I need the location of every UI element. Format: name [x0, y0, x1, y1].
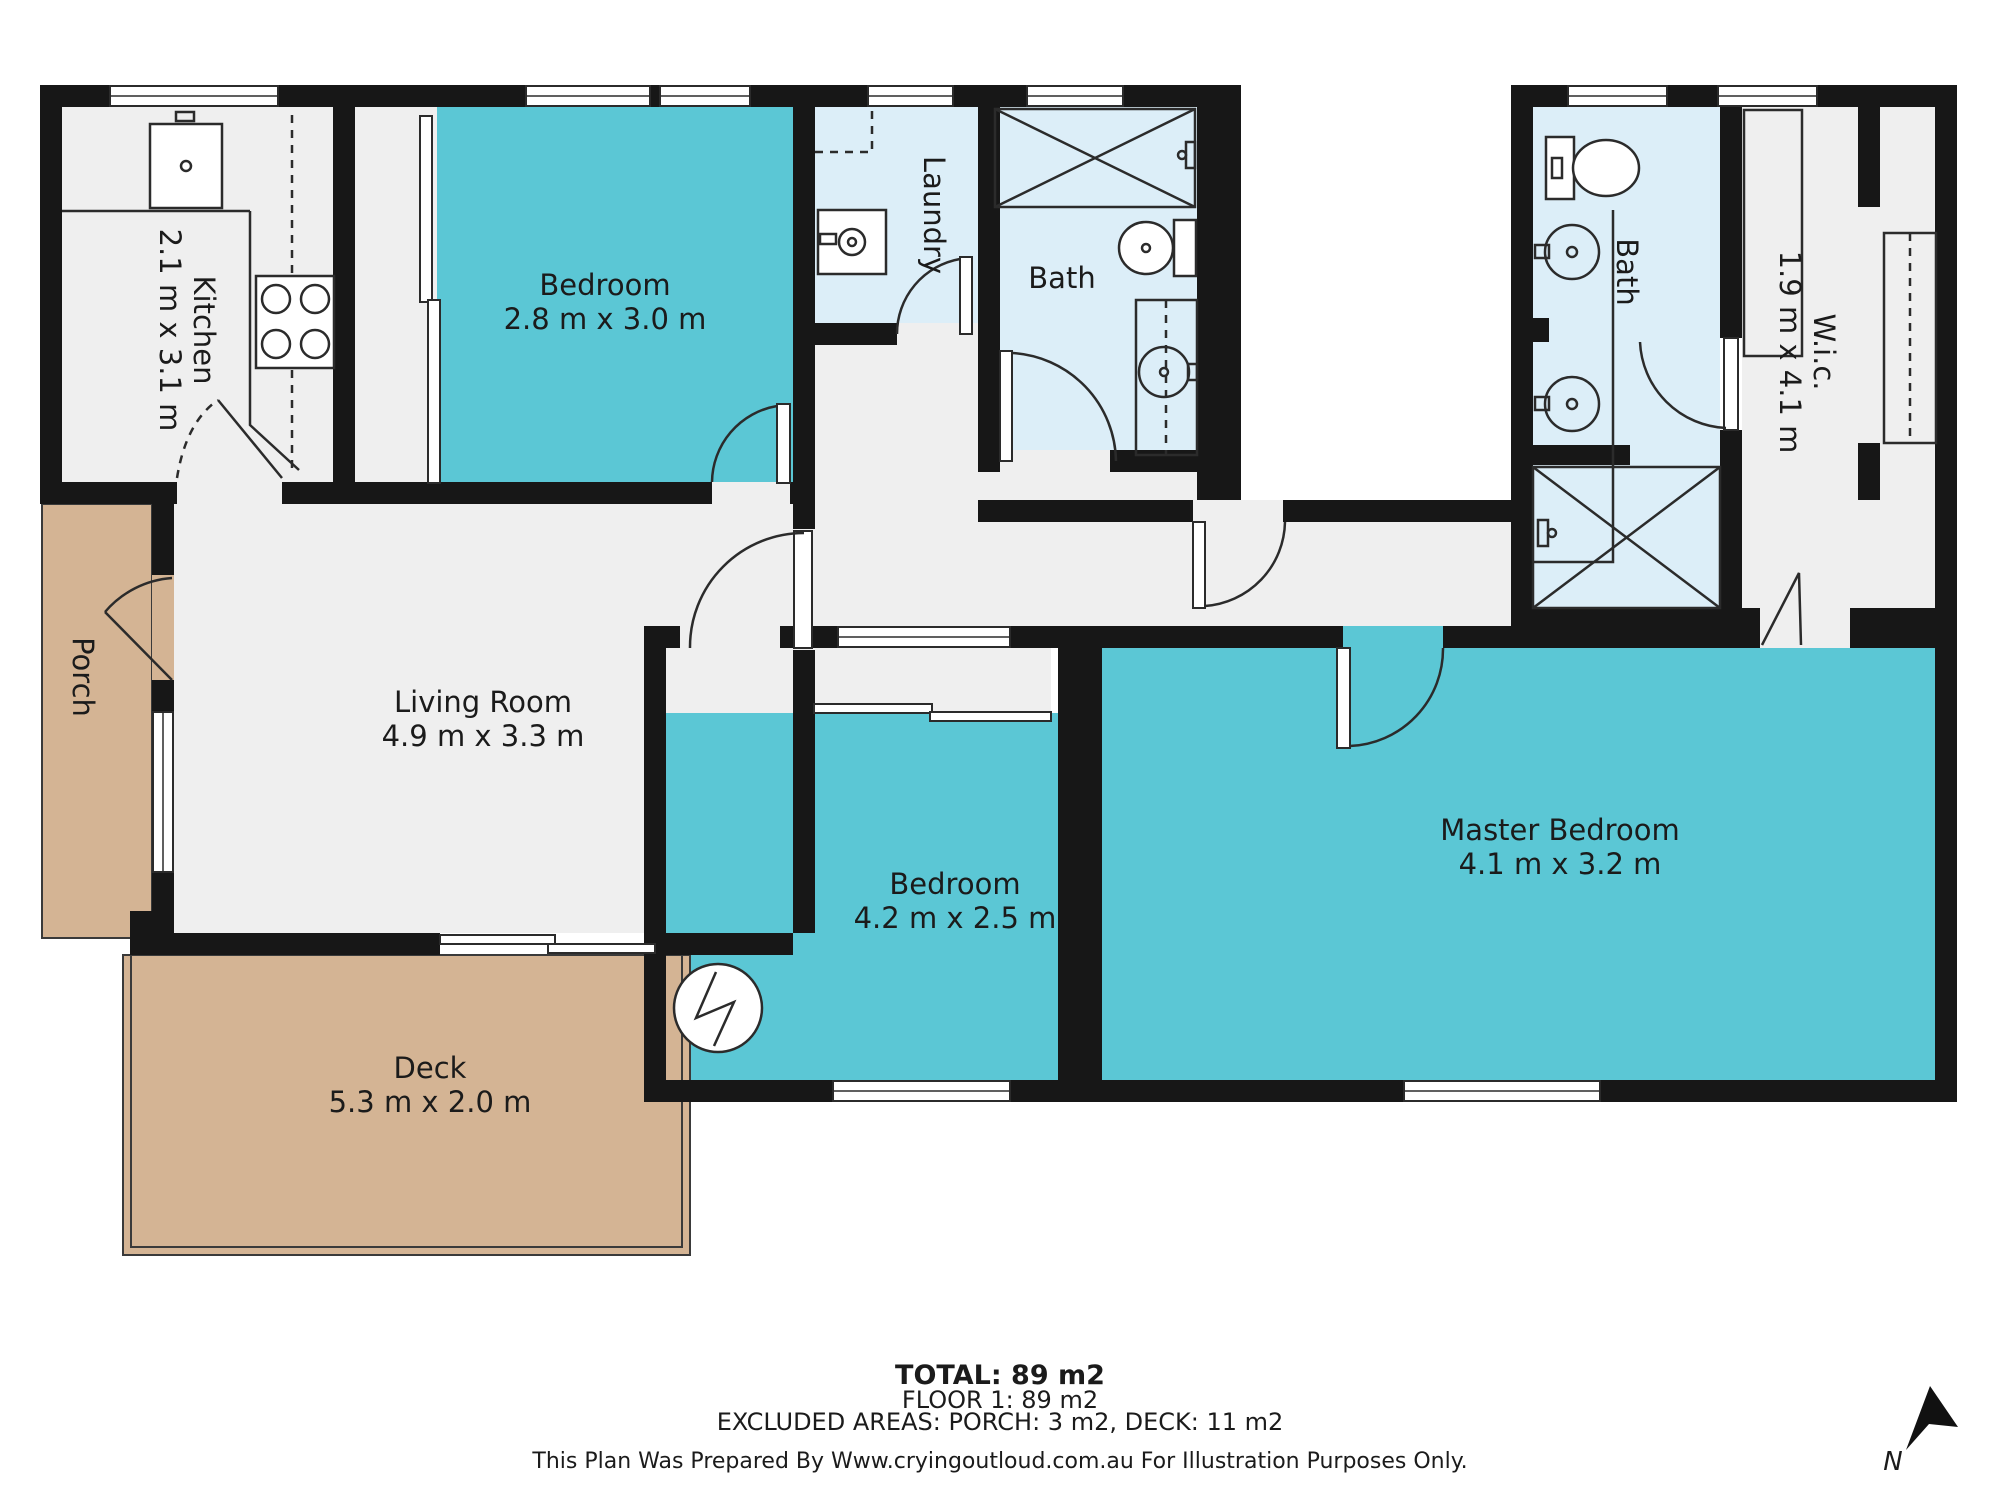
bath2-label: Bath [1610, 238, 1644, 305]
wic-dims: 1.9 m x 4.1 m [1773, 251, 1807, 454]
north-arrow: N [1883, 1386, 1958, 1477]
master-name: Master Bedroom [1440, 813, 1679, 847]
bath2-name: Bath [1610, 238, 1644, 305]
floor-plan-page: Kitchen 2.1 m x 3.1 m Bedroom 2.8 m x 3.… [0, 0, 2000, 1500]
bath2-toilet [1546, 137, 1639, 199]
master-label: Master Bedroom 4.1 m x 3.2 m [1440, 813, 1679, 881]
bedroom2-name: Bedroom [889, 867, 1020, 901]
laundry-name: Laundry [917, 156, 951, 274]
window [153, 712, 173, 872]
gap-bedroom1 [712, 482, 790, 504]
window [660, 86, 750, 106]
window [526, 86, 650, 106]
window [1404, 1081, 1600, 1101]
sliding-door [440, 935, 655, 953]
footer-excluded: EXCLUDED AREAS: PORCH: 3 m2, DECK: 11 m2 [717, 1408, 1284, 1436]
bath1-label: Bath [1028, 261, 1095, 295]
gap-bath1 [1000, 450, 1110, 472]
porch-name: Porch [66, 637, 100, 717]
living-name: Living Room [394, 685, 572, 719]
gap-bedroom2 [680, 626, 780, 648]
window [1027, 86, 1123, 106]
bath1-toilet [1119, 220, 1196, 276]
deck-name: Deck [394, 1051, 467, 1085]
footer: TOTAL: 89 m2 FLOOR 1: 89 m2 EXCLUDED ARE… [531, 1360, 1467, 1474]
window [838, 627, 1010, 647]
hall-floor [793, 472, 1241, 626]
bedroom1-dims: 2.8 m x 3.0 m [504, 302, 707, 336]
gap-master [1343, 626, 1443, 648]
porch-floor [42, 504, 152, 938]
deck-dims: 5.3 m x 2.0 m [329, 1085, 532, 1119]
living-label: Living Room 4.9 m x 3.3 m [382, 685, 585, 753]
gap-wic [1760, 608, 1850, 648]
footer-disclaimer: This Plan Was Prepared By Www.cryingoutl… [531, 1449, 1467, 1474]
kitchen-dims: 2.1 m x 3.1 m [153, 229, 187, 432]
hall-corridor-floor [815, 345, 978, 472]
window [1718, 86, 1817, 106]
window [1568, 86, 1667, 106]
bedroom2-dims: 4.2 m x 2.5 m [854, 901, 1057, 935]
bedroom2-entry-floor [666, 648, 814, 713]
floor-plan: Kitchen 2.1 m x 3.1 m Bedroom 2.8 m x 3.… [0, 0, 2000, 1500]
window [110, 86, 278, 106]
north-arrow-icon [1906, 1386, 1958, 1450]
master-dims: 4.1 m x 3.2 m [1459, 847, 1662, 881]
laundry-label: Laundry [917, 156, 951, 274]
stove [256, 276, 334, 368]
bedroom1-name: Bedroom [539, 268, 670, 302]
gap-entry [1193, 500, 1283, 522]
hall-ext-floor [1241, 522, 1511, 626]
kitchen-name: Kitchen [187, 276, 221, 385]
north-label: N [1883, 1447, 1902, 1477]
window [868, 86, 953, 106]
wic-name: W.i.c. [1807, 313, 1841, 390]
porch-label: Porch [66, 637, 100, 717]
kitchen-sink [150, 112, 222, 208]
gap-kitchen [177, 482, 282, 504]
living-dims: 4.9 m x 3.3 m [382, 719, 585, 753]
window [833, 1081, 1010, 1101]
water-heater [674, 964, 762, 1052]
washer [818, 210, 886, 274]
